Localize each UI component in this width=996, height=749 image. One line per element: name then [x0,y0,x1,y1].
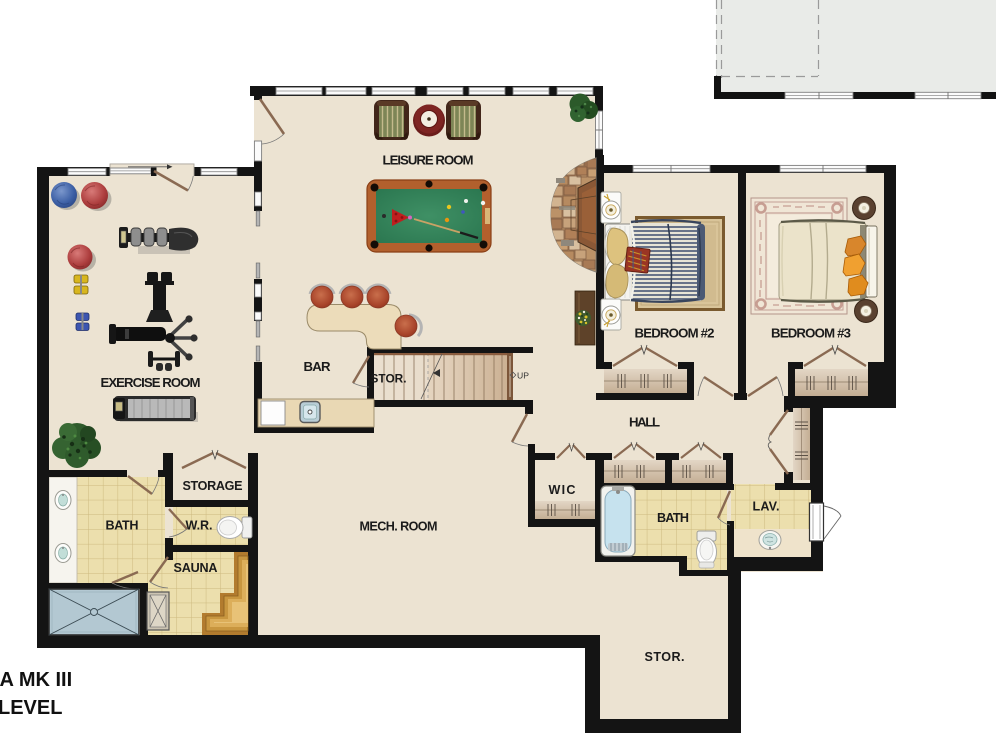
svg-text:STOR.: STOR. [371,372,407,386]
svg-text:BEDROOM #2: BEDROOM #2 [635,326,715,341]
svg-text:BAR: BAR [304,359,331,374]
svg-text:W.R.: W.R. [186,519,213,533]
svg-text:WIC: WIC [549,483,576,497]
svg-text:LAV.: LAV. [753,500,780,514]
svg-text:UP: UP [517,371,529,381]
svg-text:HALL: HALL [629,415,660,430]
svg-text:STORAGE: STORAGE [183,479,243,493]
svg-text:EXERCISE ROOM: EXERCISE ROOM [101,375,201,390]
svg-text:BATH: BATH [657,511,689,525]
svg-text:BEDROOM #3: BEDROOM #3 [771,326,851,341]
svg-text:IA MK III: IA MK III [0,669,72,691]
svg-text:LEVEL: LEVEL [0,697,62,719]
svg-text:STOR.: STOR. [645,650,685,664]
svg-text:LEISURE ROOM: LEISURE ROOM [383,153,474,168]
svg-text:MECH. ROOM: MECH. ROOM [360,520,438,534]
svg-text:SAUNA: SAUNA [174,561,218,575]
svg-text:BATH: BATH [106,519,139,533]
